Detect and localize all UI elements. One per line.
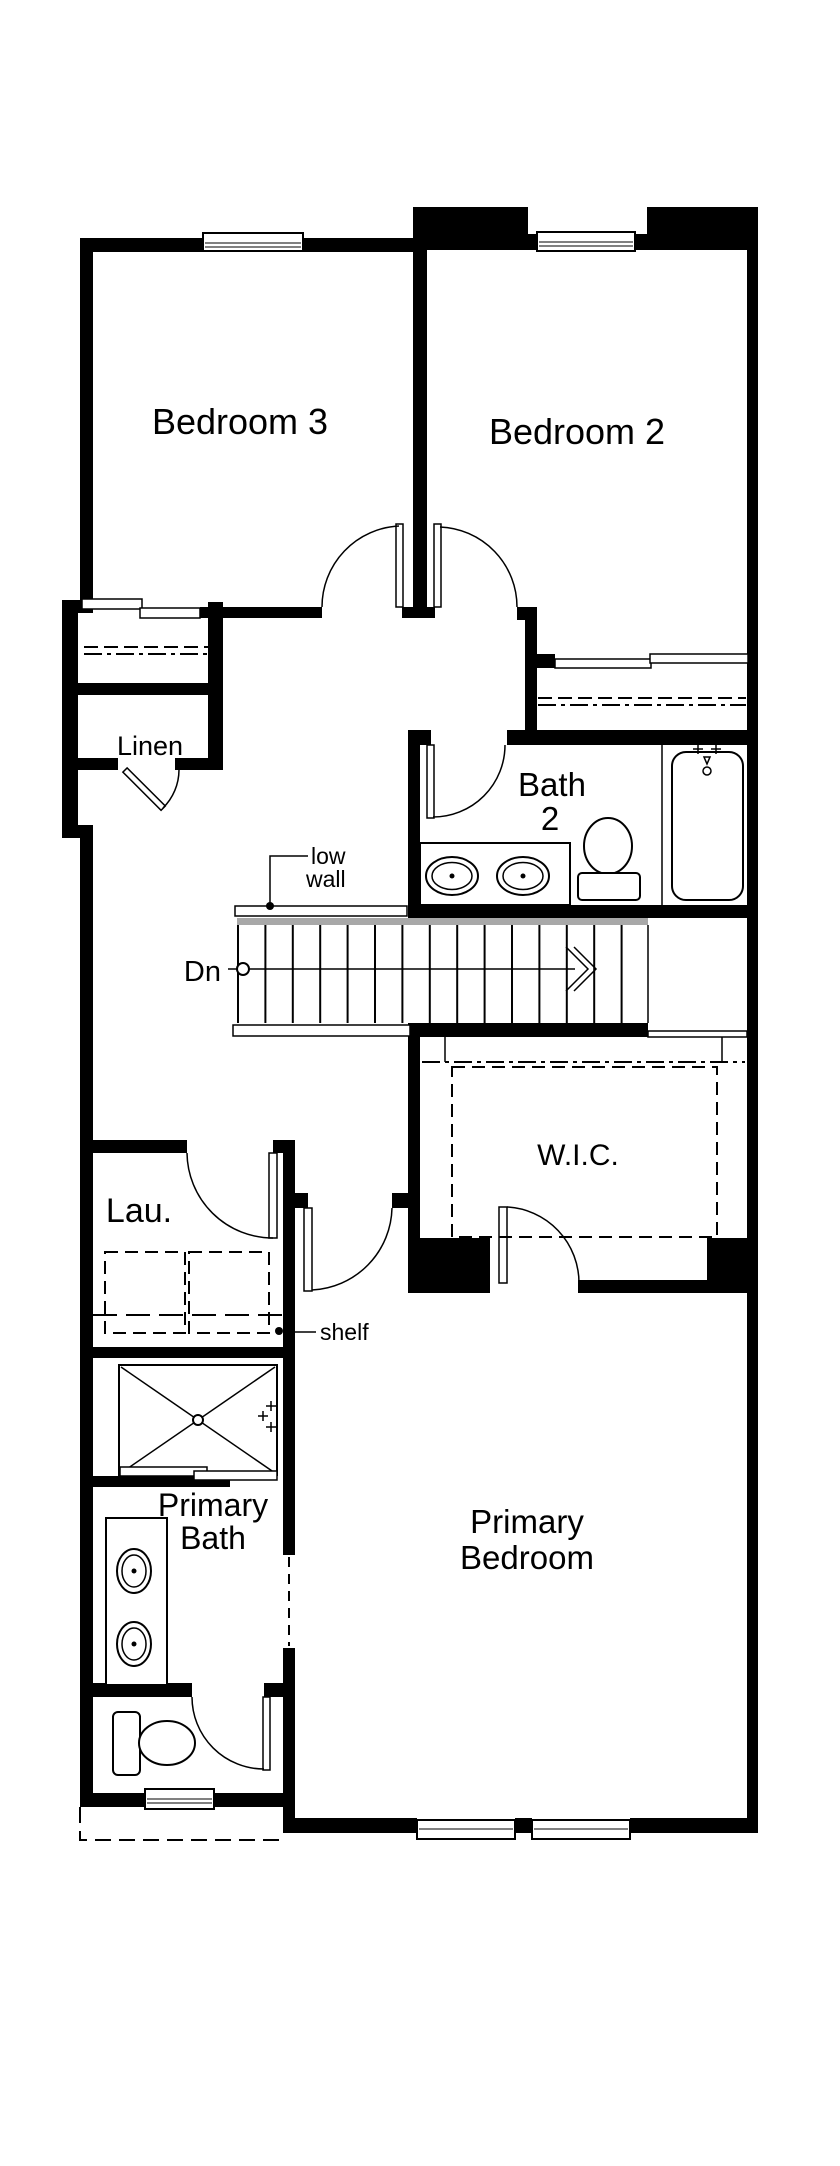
wall-segment (537, 654, 555, 668)
wall-segment (420, 1238, 490, 1293)
bedroom2-closet-bypass-doors (555, 654, 748, 668)
stairs-down-label: Dn (184, 956, 221, 988)
floor-plan-drawing: Bedroom 3 Bedroom 2 Linen Bath 2 W.I.C. … (0, 0, 840, 2166)
wall-segment (66, 683, 223, 695)
wall-segment (80, 1347, 295, 1358)
primary-bedroom-window-right (532, 1820, 630, 1839)
wall-segment (747, 207, 758, 1833)
dryer-outline (189, 1252, 269, 1333)
low-wall-top (235, 906, 407, 916)
wall-segment (212, 1793, 293, 1807)
wall-segment (208, 602, 223, 770)
wall-segment (408, 905, 758, 918)
laundry-label: Lau. (106, 1192, 172, 1230)
doors (123, 524, 579, 1770)
wic-door (499, 1207, 579, 1283)
primary-bath-label-line2: Bath (180, 1520, 246, 1556)
stair-gray-edge (237, 918, 648, 925)
primary-sink-top (117, 1549, 151, 1593)
bath2-toilet (578, 818, 640, 900)
primary-bath-label-line1: Primary (158, 1487, 268, 1523)
low-wall-bottom (233, 1025, 410, 1036)
wic-label: W.I.C. (537, 1139, 619, 1172)
primary-bedroom-window-left (417, 1820, 515, 1839)
bath2-label-line1: Bath (518, 766, 586, 803)
bypass-panel (650, 654, 748, 663)
toilet-room-door (192, 1697, 270, 1770)
wall-segment (578, 1280, 707, 1293)
wic-shelving (422, 1037, 745, 1237)
wall-segment (295, 1193, 308, 1208)
primary-bedroom-label-line2: Bedroom (460, 1539, 594, 1576)
washer-outline (105, 1252, 185, 1333)
wall-segment (283, 1648, 295, 1818)
bypass-panel (555, 659, 651, 668)
wall-segment (408, 1037, 420, 1293)
stair-direction-origin (237, 963, 249, 975)
laundry-appliances (93, 1252, 283, 1333)
primary-bedroom-door (304, 1208, 392, 1291)
primary-bedroom-label-line1: Primary (470, 1503, 584, 1540)
wall-segment (302, 238, 413, 252)
primary-sink-bottom (117, 1622, 151, 1666)
wall-segment (80, 238, 93, 600)
floor-plan-page: Bedroom 3 Bedroom 2 Linen Bath 2 W.I.C. … (0, 0, 840, 2166)
bedroom2-label: Bedroom 2 (489, 411, 665, 452)
staircase (228, 906, 648, 1036)
bedroom2-window (537, 232, 635, 251)
low-wall-leader (270, 856, 308, 903)
wall-segment (630, 1818, 758, 1833)
bedroom3-window (203, 233, 303, 251)
wall-segment (507, 730, 758, 745)
wall-segment (707, 1238, 747, 1293)
linen-label: Linen (117, 731, 183, 761)
wall-segment (80, 838, 93, 1807)
bath2-sink-right (497, 857, 549, 895)
wall-segment (515, 1818, 532, 1833)
wall-segment (80, 1793, 147, 1807)
bath2-label-line2: 2 (541, 800, 559, 837)
primary-bath-fixtures (106, 1365, 289, 1775)
wall-segment (62, 825, 93, 838)
shower (119, 1365, 277, 1480)
low-wall-leader-dot (266, 902, 274, 910)
wall-segment (80, 1140, 187, 1153)
shelf-leader-dot (275, 1327, 283, 1335)
linen-door (123, 768, 179, 810)
wall-segment (408, 1023, 648, 1037)
wall-segment (264, 1683, 283, 1697)
primary-toilet (113, 1712, 195, 1775)
closet-rod-lines (84, 647, 746, 705)
laundry-door (187, 1153, 277, 1238)
wall-segment (408, 730, 420, 918)
wall-segment (62, 600, 78, 838)
wall-segment (525, 607, 537, 733)
roof-outline-dashed (80, 1807, 287, 1840)
wall-segment (648, 1031, 747, 1037)
bedroom2-door (434, 524, 517, 607)
wall-segment (80, 238, 203, 252)
low-wall-label-line2: wall (305, 866, 346, 892)
bath2-tub (672, 752, 743, 900)
stair-treads (237, 925, 648, 1023)
toilet-room-window (145, 1789, 214, 1809)
bypass-panel (82, 599, 142, 609)
bedroom3-label: Bedroom 3 (152, 401, 328, 442)
wall-segment (283, 1818, 417, 1833)
wall-segment (62, 758, 118, 770)
bedroom3-door (322, 524, 403, 607)
wall-segment (413, 250, 427, 607)
window-recess (528, 207, 647, 234)
shower-door-panel (194, 1471, 277, 1480)
shelf-label: shelf (320, 1319, 369, 1345)
bath2-sink-left (426, 857, 478, 895)
wall-segment (392, 1193, 408, 1208)
bypass-panel (140, 608, 200, 618)
bedroom3-closet-bypass-doors (82, 599, 200, 618)
wall-segment (402, 607, 435, 618)
bath2-door (427, 745, 505, 818)
